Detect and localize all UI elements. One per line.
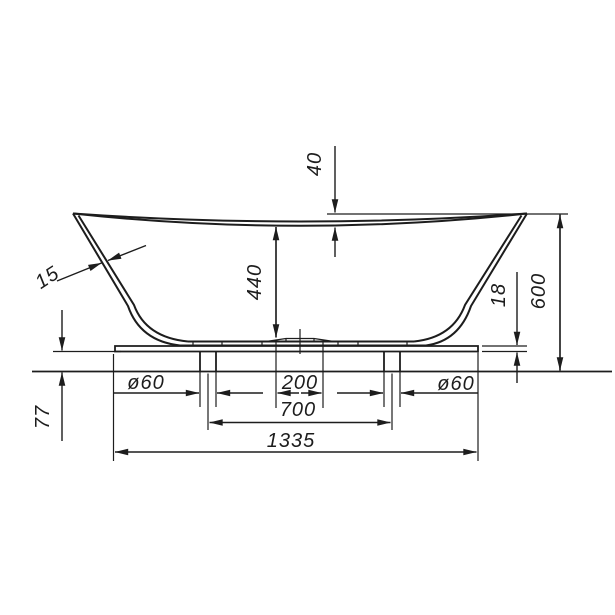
overall-height-label: 600 bbox=[528, 273, 550, 309]
right-leg bbox=[384, 352, 400, 372]
wall-thickness-label: 15 bbox=[31, 262, 63, 294]
inner-depth-label: 440 bbox=[244, 264, 266, 300]
left-leg-lines bbox=[200, 352, 216, 372]
drawing-page: 40 440 15 18 600 77 ø60 200 700 ø60 1335 bbox=[0, 0, 615, 615]
right-leg-lines bbox=[384, 352, 400, 372]
technical-drawing-canvas: 40 440 15 18 600 77 ø60 200 700 ø60 1335 bbox=[0, 0, 615, 615]
dimension-labels: 40 440 15 18 600 77 ø60 200 700 ø60 1335 bbox=[31, 152, 550, 452]
tub-outline bbox=[73, 214, 527, 346]
plate-thickness-extensions bbox=[482, 346, 527, 352]
drain-zone-label: 200 bbox=[281, 372, 318, 394]
dia-left-label: ø60 bbox=[127, 372, 164, 394]
dim-wall-leader-upper bbox=[108, 246, 146, 261]
rim-front-edge bbox=[73, 214, 527, 226]
tub-outer-shell bbox=[73, 214, 527, 346]
base-height-label: 77 bbox=[32, 405, 54, 429]
tub-inner-wall-right bbox=[414, 216, 522, 342]
dim-wall-leader-lower bbox=[57, 263, 102, 281]
leg-span-label: 700 bbox=[280, 399, 316, 421]
left-leg bbox=[200, 352, 216, 372]
tub-inner-wall-left bbox=[79, 216, 189, 342]
base-plate-outline bbox=[115, 346, 478, 352]
plate-thickness-label: 18 bbox=[488, 283, 510, 307]
overall-length-label: 1335 bbox=[267, 430, 316, 452]
rim-drop-label: 40 bbox=[304, 152, 326, 176]
dia-right-label: ø60 bbox=[437, 373, 474, 395]
